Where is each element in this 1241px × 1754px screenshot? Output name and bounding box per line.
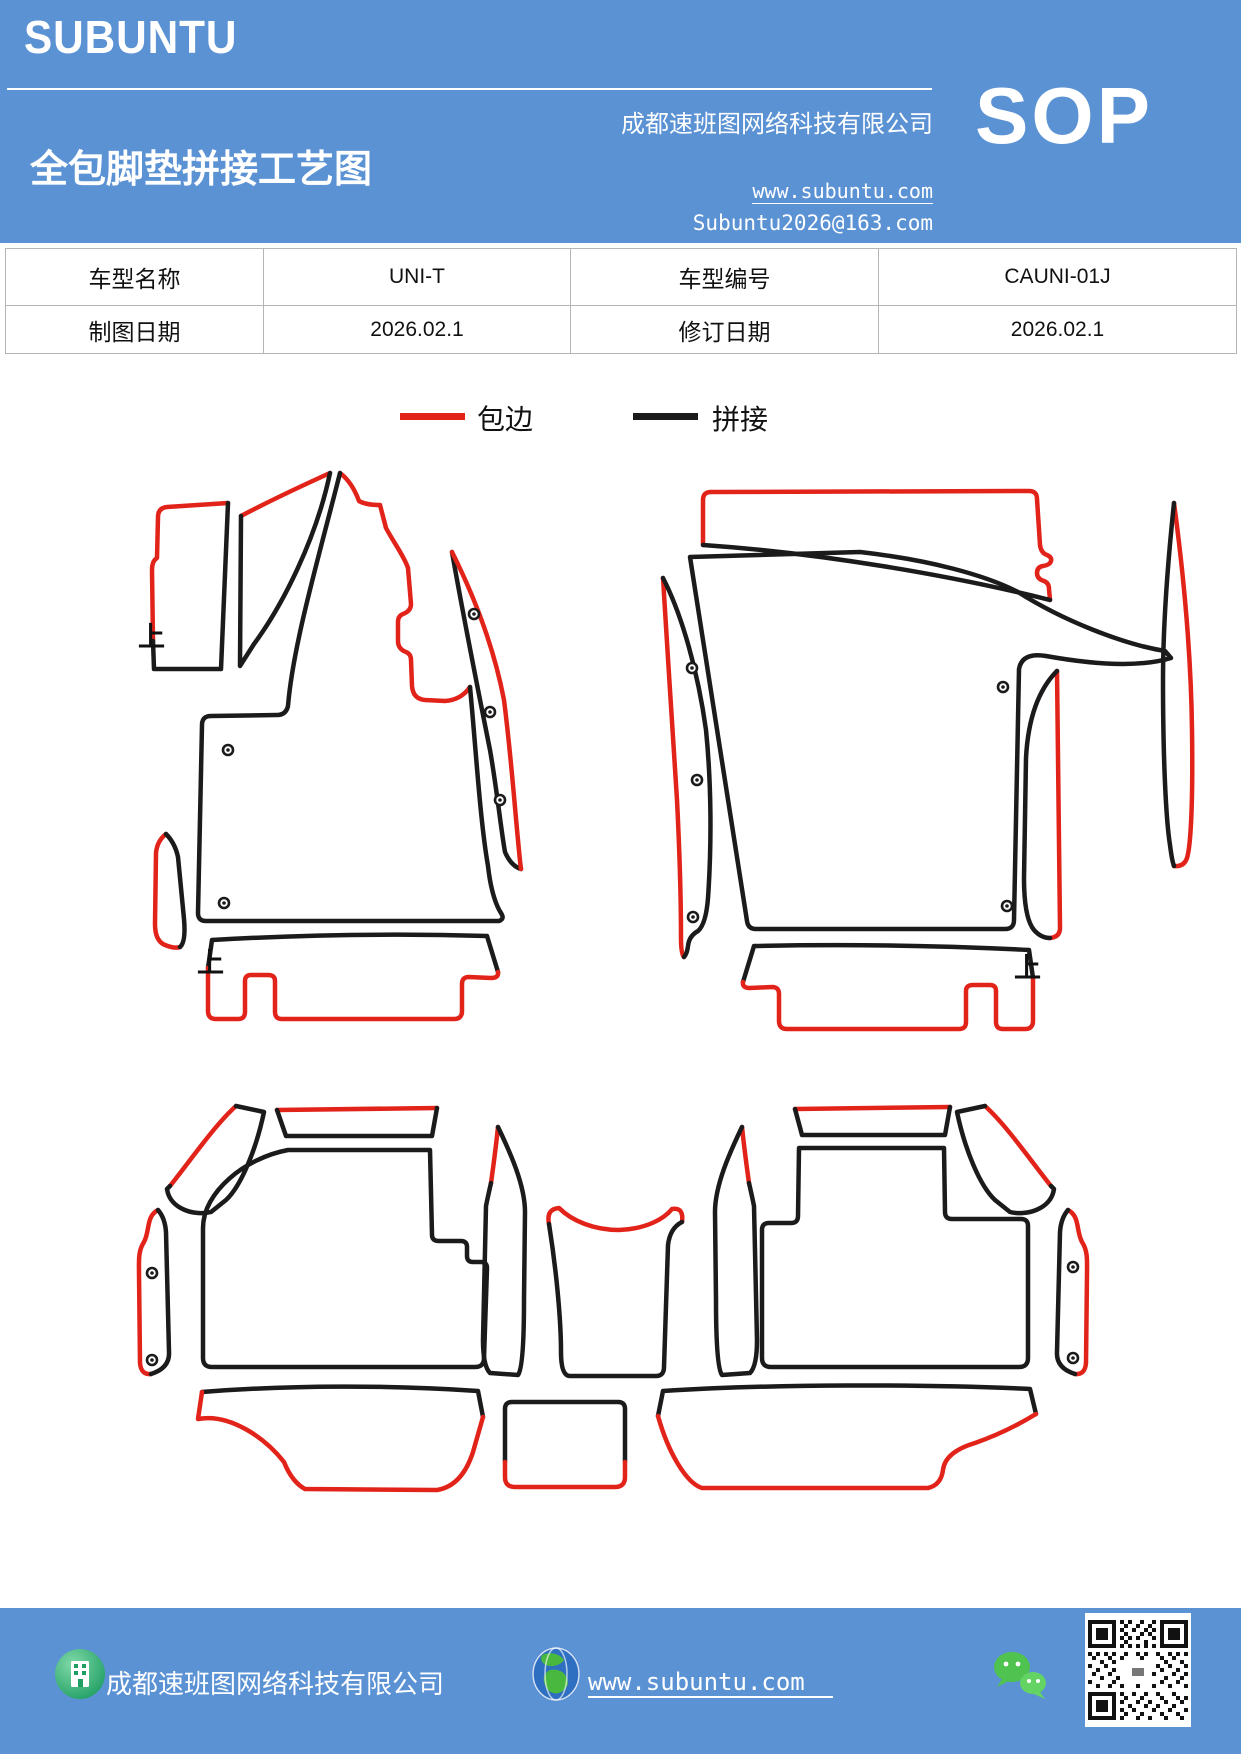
- fr-right-strip-black-edge: [1163, 503, 1174, 866]
- globe-icon: [530, 1646, 582, 1702]
- email-address: Subuntu2026@163.com: [621, 211, 933, 235]
- sop-document-page: SUBUNTU 全包脚垫拼接工艺图 成都速班图网络科技有限公司 www.subu…: [0, 0, 1241, 1754]
- orientation-mark-up: 上: [138, 622, 165, 652]
- page-title: 全包脚垫拼接工艺图: [30, 138, 372, 193]
- draw-date-label: 制图日期: [6, 306, 264, 354]
- rear-bottom-left-black-edge: [202, 1387, 483, 1417]
- rear-left-elbow-black-edge: [167, 1106, 264, 1213]
- company-name: 成都速班图网络科技有限公司: [621, 104, 933, 139]
- fl-heel-panel-red-edge: [208, 968, 498, 1019]
- fr-heel-panel-black-edge: [743, 945, 1033, 982]
- fl-main-mat-red-edge: [340, 473, 470, 701]
- fastener-hole: [495, 795, 505, 805]
- fr-inner-strip-black-edge: [1024, 671, 1057, 938]
- model-code-value: CAUNI-01J: [879, 249, 1237, 306]
- fl-wedge-black-edge: [240, 473, 330, 666]
- rear-bottom-right-red-edge: [658, 1414, 1036, 1488]
- header: SUBUNTU 全包脚垫拼接工艺图 成都速班图网络科技有限公司 www.subu…: [0, 0, 1241, 243]
- model-name-label: 车型名称: [6, 249, 264, 306]
- fl-left-strip-red-edge: [155, 834, 180, 948]
- fastener-hole: [147, 1355, 157, 1365]
- fastener-hole: [1068, 1353, 1078, 1363]
- website-link[interactable]: www.subuntu.com: [752, 179, 933, 204]
- footer-website-link[interactable]: www.subuntu.com: [588, 1668, 833, 1698]
- fastener-hole: [687, 663, 697, 673]
- header-contact-block: 成都速班图网络科技有限公司 www.subuntu.com Subuntu202…: [621, 104, 933, 235]
- fr-main-mat-black-edge: [690, 552, 1171, 929]
- building-icon: [54, 1648, 106, 1700]
- splice-label: 拼接: [712, 398, 768, 438]
- qr-code: [1085, 1613, 1191, 1727]
- fastener-hole-dots: [150, 612, 1075, 1362]
- rear-tunnel-red-edge: [548, 1208, 682, 1230]
- rear-left-trapezoid-red-edge: [277, 1108, 437, 1110]
- fr-heel-panel-red-edge: [743, 978, 1033, 1029]
- binding-edge-label: 包边: [477, 398, 533, 438]
- table-row: 制图日期 2026.02.1 修订日期 2026.02.1: [6, 306, 1237, 354]
- fl-small-panel-black-edge: [153, 503, 228, 669]
- model-name-value: UNI-T: [264, 249, 571, 306]
- fl-main-mat-black-edge: [198, 473, 503, 921]
- fastener-hole: [1068, 1262, 1078, 1272]
- rear-left-trapezoid-black-edge: [277, 1108, 437, 1136]
- draw-date-value: 2026.02.1: [264, 306, 571, 354]
- fastener-hole: [688, 912, 698, 922]
- footer: 成都速班图网络科技有限公司 www.subuntu.com: [0, 1608, 1241, 1754]
- table-row: 车型名称 UNI-T 车型编号 CAUNI-01J: [6, 249, 1237, 306]
- binding-edge-swatch: [400, 413, 465, 420]
- rear-right-trapezoid-black-edge: [795, 1107, 950, 1135]
- front-right-mat-group: [663, 491, 1192, 1029]
- rear-right-main-outline: [762, 1148, 1028, 1367]
- fr-left-strip-black-edge: [663, 578, 710, 957]
- fastener-hole: [485, 707, 495, 717]
- fastener-hole: [998, 682, 1008, 692]
- fl-left-strip-black-edge: [166, 834, 185, 947]
- model-code-label: 车型编号: [571, 249, 879, 306]
- rear-right-inner-strip-black-edge: [715, 1127, 757, 1375]
- revise-date-value: 2026.02.1: [879, 306, 1237, 354]
- fastener-hole: [219, 898, 229, 908]
- fastener-hole: [692, 775, 702, 785]
- rear-far-right-strip-black-edge: [1057, 1210, 1075, 1374]
- orientation-mark-up: 上: [1014, 953, 1041, 983]
- rear-far-right-strip-red-edge: [1068, 1210, 1087, 1374]
- orientation-mark-up: 上: [197, 948, 224, 978]
- fr-left-strip-red-edge: [663, 578, 684, 957]
- fl-right-strip-black-edge: [452, 552, 521, 869]
- fr-top-panel-black-edge: [703, 545, 1050, 600]
- header-divider-line: [7, 88, 932, 90]
- rear-right-elbow-black-edge: [957, 1106, 1054, 1213]
- rear-far-left-strip-black-edge: [151, 1210, 169, 1374]
- fastener-hole: [1002, 901, 1012, 911]
- rear-mat-group: [139, 1106, 1087, 1490]
- vehicle-info-table: 车型名称 UNI-T 车型编号 CAUNI-01J 制图日期 2026.02.1…: [5, 248, 1237, 354]
- rear-left-inner-strip-black-edge: [483, 1127, 525, 1375]
- splice-swatch: [633, 413, 698, 420]
- wechat-icon: [990, 1650, 1052, 1704]
- fr-inner-strip-red-edge: [1050, 671, 1060, 938]
- rear-tunnel-black-edge: [549, 1222, 682, 1376]
- fl-heel-panel-black-edge: [208, 935, 498, 972]
- rear-bottom-center-black-edge: [505, 1402, 625, 1462]
- rear-left-inner-strip-red-edge: [491, 1127, 498, 1183]
- rear-right-elbow-red-edge: [985, 1106, 1051, 1186]
- footer-company-name: 成都速班图网络科技有限公司: [106, 1664, 444, 1701]
- fastener-holes: [147, 609, 1078, 1365]
- sop-badge: SOP: [975, 70, 1153, 162]
- fl-right-strip-red-edge: [452, 552, 521, 869]
- revise-date-label: 修订日期: [571, 306, 879, 354]
- fastener-hole: [223, 745, 233, 755]
- fastener-hole: [469, 609, 479, 619]
- rear-far-left-strip-red-edge: [139, 1210, 158, 1374]
- rear-bottom-right-black-edge: [658, 1385, 1036, 1416]
- brand-logo: SUBUNTU: [24, 10, 237, 64]
- rear-left-main-outline: [203, 1150, 487, 1367]
- rear-left-elbow-red-edge: [170, 1106, 236, 1186]
- fr-top-panel-red-edge: [703, 491, 1051, 600]
- fastener-hole: [147, 1268, 157, 1278]
- fl-wedge-red-edge: [241, 473, 330, 516]
- fl-small-panel-red-edge: [152, 503, 228, 641]
- rear-bottom-center-red-edge: [505, 1462, 625, 1487]
- rear-right-trapezoid-red-edge: [795, 1107, 950, 1109]
- front-left-mat-group: [152, 473, 521, 1019]
- rear-right-inner-strip-red-edge: [742, 1127, 749, 1183]
- fr-right-strip-red-edge: [1174, 503, 1192, 866]
- rear-bottom-left-red-edge: [198, 1392, 483, 1490]
